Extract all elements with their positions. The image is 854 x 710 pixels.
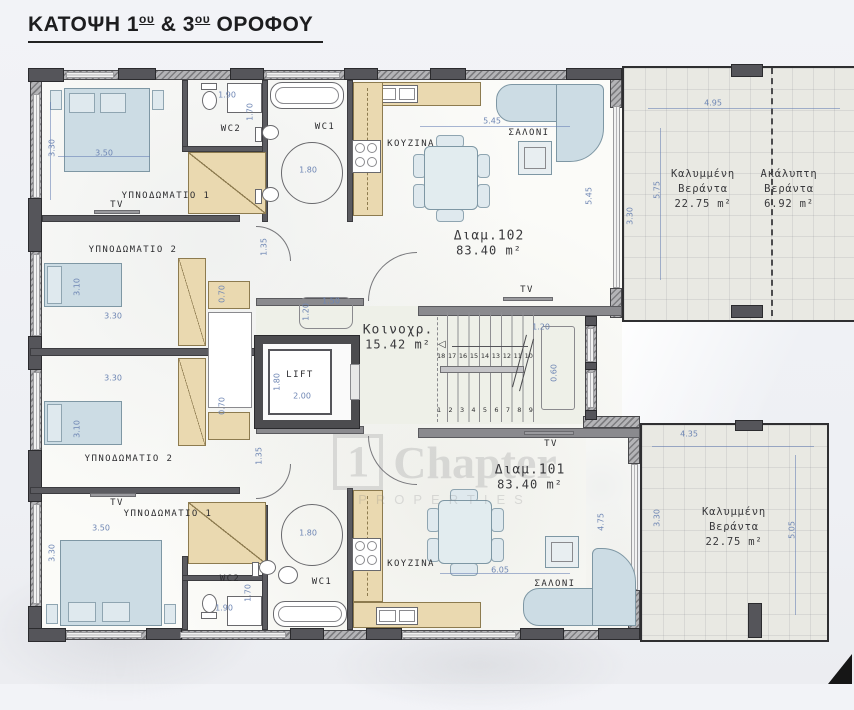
- column: [146, 628, 182, 640]
- column: [598, 628, 640, 640]
- page-title: ΚΑΤΟΨΗ 1ου & 3ου ΟΡΟΦΟΥ: [28, 12, 323, 43]
- column: [28, 68, 64, 82]
- stair-step-number: 14: [481, 352, 489, 362]
- dining-chair: [477, 184, 490, 208]
- staircase-path-line: [452, 346, 528, 347]
- dining-chair: [436, 209, 464, 222]
- closet-cell: [208, 281, 250, 309]
- column: [28, 628, 66, 642]
- stair-step-number: 7: [506, 406, 510, 416]
- dining-chair: [477, 154, 490, 178]
- title-part: ΟΡΟΦΟΥ: [210, 13, 313, 36]
- stove-burner: [367, 143, 377, 153]
- stair-step-number: 12: [503, 352, 511, 362]
- dimension-label: 5.75: [653, 181, 662, 199]
- room-label: ΣΑΛΟΝΙ: [509, 128, 550, 138]
- dimension-label: 3.30: [48, 544, 57, 562]
- dimension-label: 3.50: [95, 149, 113, 158]
- room-label: ΥΠΝΟΔΩΜΑΤΙΟ 1: [124, 509, 213, 519]
- window: [66, 72, 114, 78]
- staircase-rail: [440, 366, 524, 373]
- toilet-tank: [201, 83, 217, 90]
- interior-wall: [42, 215, 240, 222]
- dimension-label: 1.80: [299, 166, 317, 175]
- floor-plan: ΚΑΤΟΨΗ 1ου & 3ου ΟΡΟΦΟΥ: [0, 0, 854, 684]
- column: [366, 628, 402, 640]
- dining-table: [438, 500, 492, 564]
- pillow: [100, 93, 126, 113]
- column: [585, 362, 597, 370]
- apartment-label: Διαμ.10183.40 m²: [495, 463, 566, 492]
- dimension-label: 4.75: [597, 513, 606, 531]
- dimension-label: 0.70: [218, 285, 227, 303]
- tv-icon: [503, 297, 553, 301]
- apartment-area: 83.40 m²: [495, 478, 566, 492]
- stair-step-number: 11: [514, 352, 522, 362]
- veranda-column: [748, 603, 762, 638]
- dimension-label: 3.10: [73, 420, 82, 438]
- column: [585, 316, 597, 326]
- dimension-label: 0.60: [550, 364, 559, 382]
- dimension-label: 3.30: [48, 139, 57, 157]
- apartment-name: Διαμ.101: [495, 463, 566, 478]
- veranda-column: [731, 305, 763, 318]
- corner-triangle-decoration: [828, 654, 852, 684]
- column: [566, 68, 622, 80]
- nightstand: [164, 604, 176, 624]
- dimension-line: [660, 128, 661, 280]
- dimension-line: [648, 108, 840, 109]
- interior-wall: [182, 80, 188, 152]
- lift-door: [350, 364, 360, 400]
- stair-step-number: 13: [492, 352, 500, 362]
- room-label: ΚΟΥΖΙΝΑ: [387, 139, 435, 149]
- stove-burner: [355, 157, 365, 167]
- column: [585, 410, 597, 420]
- column: [290, 628, 324, 640]
- apartment-area: 15.42 m²: [363, 338, 434, 352]
- apartment-name: Διαμ.102: [454, 229, 525, 244]
- dimension-label: 4.95: [704, 99, 722, 108]
- sofa: [523, 588, 597, 626]
- dimension-label: 4.35: [680, 430, 698, 439]
- nightstand: [50, 90, 62, 110]
- bidet-tank: [255, 189, 262, 204]
- dimension-label: 5.45: [585, 187, 594, 205]
- tv-icon: [90, 493, 136, 497]
- title-superscript: ου: [195, 12, 210, 26]
- room-label: ΥΠΝΟΔΩΜΑΤΙΟ 1: [122, 191, 211, 201]
- sink-basin: [399, 610, 415, 622]
- stair-step-number: 8: [517, 406, 521, 416]
- window: [613, 106, 620, 288]
- veranda-label-line: 22.75 m²: [671, 198, 735, 213]
- pillow: [47, 404, 62, 442]
- room-label: ΥΠΝΟΔΩΜΑΤΙΟ 2: [89, 245, 178, 255]
- shaft-closet: [208, 312, 252, 408]
- stove-burner: [355, 555, 365, 565]
- stair-numbers-lower: 123456789: [437, 406, 533, 416]
- window: [66, 632, 142, 638]
- dining-chair: [450, 563, 478, 576]
- stair-step-number: 10: [525, 352, 533, 362]
- wall-right-lower-1: [628, 436, 640, 464]
- dimension-line: [420, 126, 570, 127]
- coffee-table-inner: [524, 147, 546, 169]
- column: [230, 68, 264, 80]
- stair-step-number: 18: [437, 352, 445, 362]
- room-label: TV: [110, 200, 124, 210]
- room-label: TV: [544, 439, 558, 449]
- lift-label: LIFT: [286, 370, 314, 380]
- veranda-label-line: 6.92 m²: [761, 198, 818, 213]
- veranda-label-line: 22.75 m²: [702, 536, 766, 551]
- toilet-icon: [259, 560, 276, 575]
- room-label: TV: [110, 498, 124, 508]
- window: [33, 372, 40, 450]
- stair-step-number: 15: [470, 352, 478, 362]
- closet: [178, 358, 206, 446]
- apartment-label: Κοινοχρ.15.42 m²: [363, 323, 434, 352]
- column: [28, 198, 42, 252]
- window: [587, 372, 594, 408]
- window: [402, 632, 516, 638]
- dimension-label: 1.70: [246, 103, 255, 121]
- stair-step-number: 3: [460, 406, 464, 416]
- bathtub-inner: [278, 606, 342, 622]
- tv-icon: [524, 431, 574, 435]
- stove-burner: [355, 143, 365, 153]
- dimension-label: 2.00: [293, 392, 311, 401]
- veranda-column: [735, 420, 763, 431]
- dimension-label: 1.80: [273, 373, 282, 391]
- window: [33, 94, 40, 198]
- dimension-label: 6.05: [491, 566, 509, 575]
- pillow: [69, 93, 95, 113]
- window: [180, 632, 286, 638]
- coffee-table-inner: [551, 542, 573, 562]
- stair-numbers-upper: 181716151413121110: [437, 352, 533, 362]
- stair-step-number: 1: [437, 406, 441, 416]
- dimension-label: 3.30: [104, 312, 122, 321]
- bathtub-inner: [275, 87, 339, 104]
- veranda-label-line: Καλυμμένη: [702, 505, 766, 520]
- stove-burner: [367, 541, 377, 551]
- room-label: WC1: [315, 122, 335, 132]
- dimension-label: 1.50: [322, 297, 340, 306]
- room-label: ΚΟΥΖΙΝΑ: [387, 559, 435, 569]
- apartment-label: Διαμ.10283.40 m²: [454, 229, 525, 258]
- dimension-label: 1.70: [244, 584, 253, 602]
- closet: [178, 258, 206, 346]
- pillow: [47, 266, 62, 304]
- dimension-line: [652, 446, 814, 447]
- dimension-label: 1.20: [532, 323, 550, 332]
- dimension-label: 1.90: [215, 604, 233, 613]
- dimension-label: 3.30: [104, 374, 122, 383]
- column: [520, 628, 564, 640]
- stair-step-number: 2: [448, 406, 452, 416]
- dimension-label: 3.30: [653, 509, 662, 527]
- window: [33, 254, 40, 336]
- column: [28, 450, 42, 502]
- apartment-name: Κοινοχρ.: [363, 323, 434, 338]
- veranda-label-line: Βεράντα: [761, 182, 818, 197]
- title-superscript: ου: [139, 12, 154, 26]
- room-label: ΥΠΝΟΔΩΜΑΤΙΟ 2: [85, 454, 174, 464]
- pillow: [102, 602, 130, 622]
- column: [344, 68, 378, 80]
- dimension-label: 1.35: [255, 447, 264, 465]
- window: [33, 504, 40, 604]
- nightstand: [46, 604, 58, 624]
- pillow: [68, 602, 96, 622]
- veranda-label: ΚαλυμμένηΒεράντα22.75 m²: [671, 167, 735, 213]
- room-label: WC2: [221, 124, 241, 134]
- nightstand: [152, 90, 164, 110]
- dimension-label: 3.50: [92, 524, 110, 533]
- stove-burner: [367, 555, 377, 565]
- stair-step-number: 6: [494, 406, 498, 416]
- apartment-area: 83.40 m²: [454, 244, 525, 258]
- tv-icon: [94, 210, 140, 214]
- room-label: ΣΑΛΟΝΙ: [535, 579, 576, 589]
- toilet-icon: [262, 125, 279, 140]
- stove-burner: [355, 541, 365, 551]
- sink-basin: [379, 610, 396, 622]
- dimension-label: 1.20: [302, 303, 311, 321]
- veranda-column: [731, 64, 763, 77]
- dimension-label: 0.70: [218, 397, 227, 415]
- veranda-label-line: Βεράντα: [702, 520, 766, 535]
- stair-step-number: 9: [529, 406, 533, 416]
- dimension-label: 5.05: [788, 521, 797, 539]
- stair-step-number: 17: [448, 352, 456, 362]
- stair-step-number: 5: [483, 406, 487, 416]
- dimension-label: 5.45: [483, 117, 501, 126]
- veranda-label: ΑκάλυπτηΒεράντα6.92 m²: [761, 167, 818, 213]
- veranda-label-line: Καλυμμένη: [671, 167, 735, 182]
- interior-wall: [182, 556, 188, 630]
- room-label: WC2: [220, 574, 240, 584]
- veranda-label-line: Ακάλυπτη: [761, 167, 818, 182]
- stair-step-number: 4: [471, 406, 475, 416]
- dimension-label: 3.10: [73, 278, 82, 296]
- veranda-label-line: Βεράντα: [671, 182, 735, 197]
- dining-chair: [491, 508, 504, 532]
- title-part: & 3: [154, 13, 195, 36]
- wardrobe: [188, 152, 266, 214]
- toilet-icon: [202, 91, 217, 110]
- bidet-icon: [262, 187, 279, 202]
- sink-basin: [399, 88, 415, 100]
- stair-step-number: 16: [459, 352, 467, 362]
- stairs-up-arrow-icon: ◁: [438, 340, 446, 350]
- toilet-tank: [255, 127, 262, 142]
- toilet-tank: [201, 612, 217, 619]
- dimension-label: 1.80: [299, 529, 317, 538]
- dining-chair: [491, 538, 504, 562]
- window: [587, 328, 594, 362]
- window: [266, 72, 340, 78]
- dimension-label: 1.90: [218, 91, 236, 100]
- room-label: TV: [520, 285, 534, 295]
- column: [118, 68, 156, 80]
- dimension-label: 1.35: [260, 238, 269, 256]
- toilet-tank: [252, 562, 259, 577]
- stove-burner: [367, 157, 377, 167]
- veranda-label: ΚαλυμμένηΒεράντα22.75 m²: [702, 505, 766, 551]
- dining-table: [424, 146, 478, 210]
- bidet-icon: [278, 566, 298, 584]
- title-part: ΚΑΤΟΨΗ 1: [28, 13, 139, 36]
- closet-cell: [208, 412, 250, 440]
- dimension-label: 3.30: [626, 207, 635, 225]
- room-label: WC1: [312, 577, 332, 587]
- column: [430, 68, 466, 80]
